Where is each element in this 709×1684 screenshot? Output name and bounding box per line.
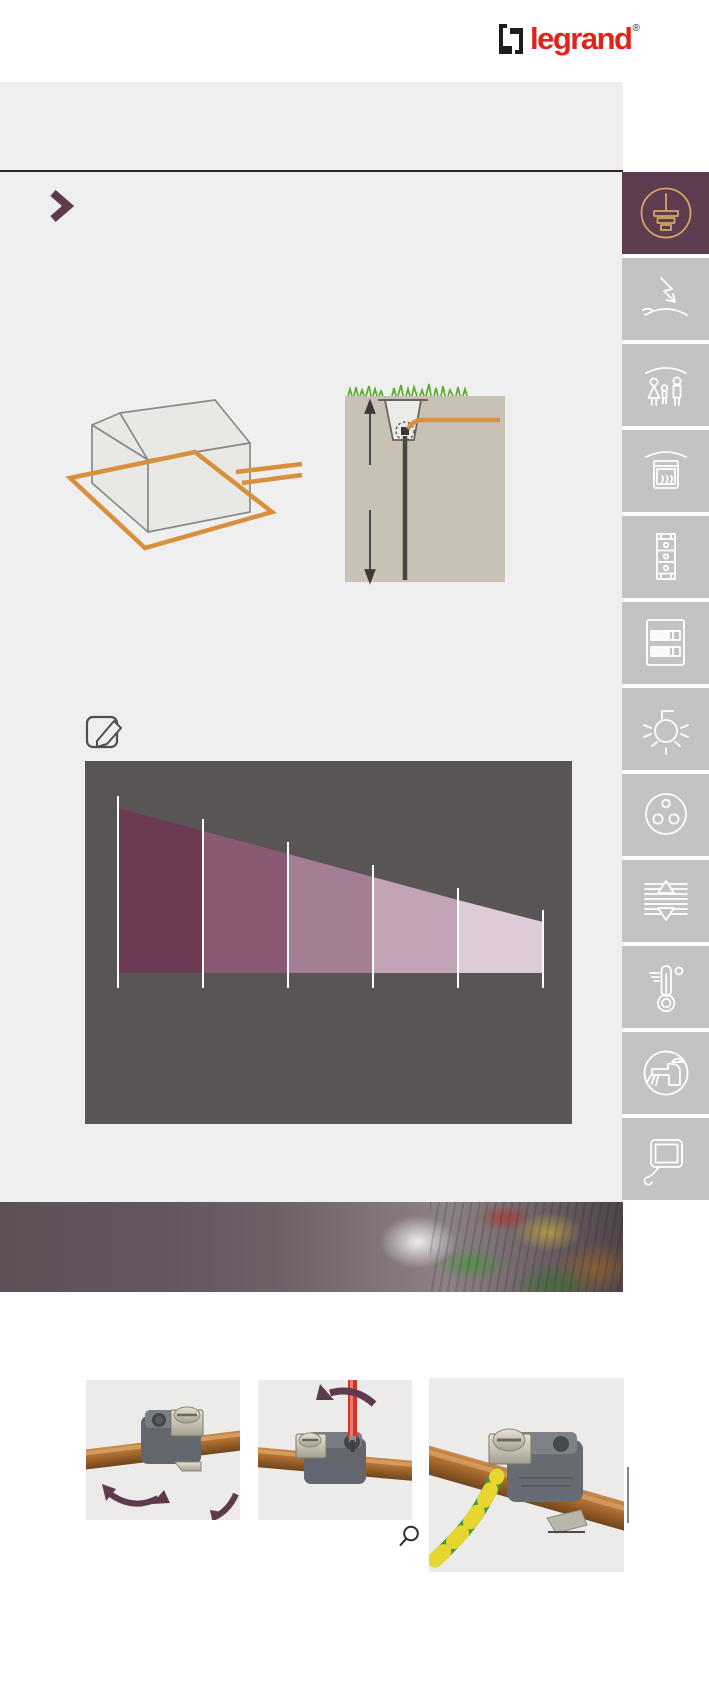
grass [348, 384, 467, 396]
earth-clamp [141, 1407, 203, 1471]
footer-dash [548, 1531, 585, 1533]
sidebar-item-cooking[interactable] [622, 430, 709, 512]
pencil-edit-icon [85, 710, 125, 750]
thermometer-icon [637, 958, 695, 1016]
magnifier-icon[interactable] [398, 1524, 422, 1548]
installation-photo-strip [0, 1202, 623, 1292]
legrand-logo-text: legrand [530, 22, 631, 56]
sidebar-item-sockets[interactable] [622, 774, 709, 856]
sidebar-item-lighting[interactable] [622, 688, 709, 770]
water-tap-icon [637, 1044, 695, 1102]
sidebar-item-family-protection[interactable] [622, 344, 709, 426]
monitor-icon [637, 1130, 695, 1188]
install-step-2-photo [258, 1380, 412, 1520]
earth-rod-trench-illustration [300, 350, 510, 585]
energy-saving-lamp-icon [637, 700, 695, 758]
resistance-wedge-chart [85, 761, 572, 1124]
clamp-tab [547, 1510, 587, 1533]
sidebar-item-water[interactable] [622, 1032, 709, 1114]
cable-texture [430, 1202, 623, 1292]
header-divider-rule [0, 170, 623, 172]
catalog-page: legrand ® [0, 0, 709, 1684]
house-earth-loop-illustration [60, 360, 310, 560]
family-protection-icon [637, 356, 695, 414]
sidebar-item-distribution-column[interactable] [622, 516, 709, 598]
sidebar-item-multimedia[interactable] [622, 1118, 709, 1200]
legrand-logo-icon [495, 22, 525, 56]
consumer-unit-icon [637, 614, 695, 672]
lightning-surge-icon [637, 270, 695, 328]
section-chevron-icon [48, 190, 74, 222]
distribution-column-icon [637, 528, 695, 586]
sidebar-item-surge-protection[interactable] [622, 258, 709, 340]
turn-arrow [316, 1384, 374, 1404]
wedge-chart-svg [85, 761, 572, 1124]
earth-wire [435, 1476, 497, 1560]
sidebar-item-roller-shutters[interactable] [622, 860, 709, 942]
power-socket-icon [637, 786, 695, 844]
page-edge-mark [627, 1467, 629, 1523]
install-step-1-photo [86, 1380, 240, 1520]
sidebar-item-earthing[interactable] [622, 172, 709, 254]
registered-trademark: ® [632, 24, 639, 34]
oven-cooking-icon [637, 442, 695, 500]
roller-shutter-icon [637, 872, 695, 930]
soil-block [345, 396, 505, 582]
sidebar-item-consumer-unit[interactable] [622, 602, 709, 684]
rotate-arrow [102, 1484, 236, 1520]
sidebar-item-heating[interactable] [622, 946, 709, 1028]
earth-ground-icon [637, 184, 695, 242]
install-step-3-photo [429, 1378, 624, 1572]
legrand-logo: legrand ® [495, 22, 640, 56]
